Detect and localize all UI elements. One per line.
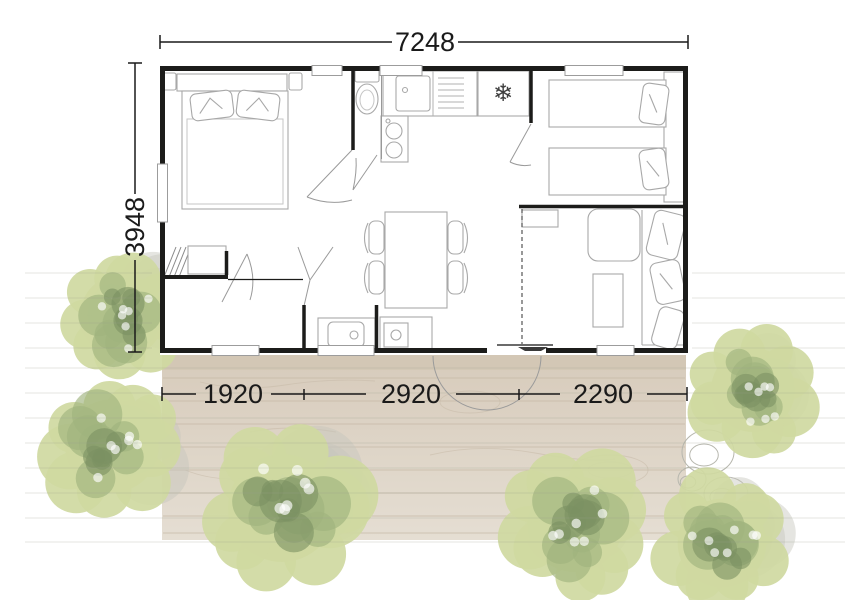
dimension-label-segment: 2290	[573, 379, 633, 409]
mobile-home-plan: ❄	[158, 66, 691, 356]
wardrobe	[588, 209, 640, 261]
floorplan-page: ❄	[0, 0, 850, 600]
tree	[202, 424, 378, 591]
cabinet	[188, 246, 226, 274]
wc-room	[355, 69, 379, 114]
window	[158, 164, 168, 222]
pillow	[638, 82, 669, 125]
floorplan-canvas: ❄	[0, 0, 850, 600]
dimension-label-segment: 1920	[203, 379, 263, 409]
dining-table	[385, 212, 447, 308]
dimension-top: 7248	[160, 27, 688, 57]
sink	[396, 76, 430, 111]
window	[212, 346, 259, 356]
pillow	[638, 147, 669, 190]
window	[565, 66, 623, 76]
window	[318, 346, 374, 356]
dimension-label-height: 3948	[120, 197, 150, 257]
freezer-snowflake-icon: ❄	[493, 79, 513, 107]
window	[597, 346, 634, 356]
nightstand	[289, 73, 302, 90]
headboard	[177, 74, 287, 91]
utility-box	[384, 323, 408, 347]
pillow	[236, 90, 281, 122]
window	[380, 66, 422, 76]
window	[312, 66, 342, 76]
dimension-label-segment: 2920	[381, 379, 441, 409]
dimension-label-width: 7248	[395, 27, 455, 57]
side-table	[593, 274, 623, 327]
shelf	[522, 210, 558, 227]
dimension-bottom: 1920 2920 2290	[162, 379, 687, 409]
tree	[37, 381, 189, 518]
pillow	[189, 90, 234, 122]
washbasin	[328, 322, 364, 347]
tree	[688, 324, 820, 458]
